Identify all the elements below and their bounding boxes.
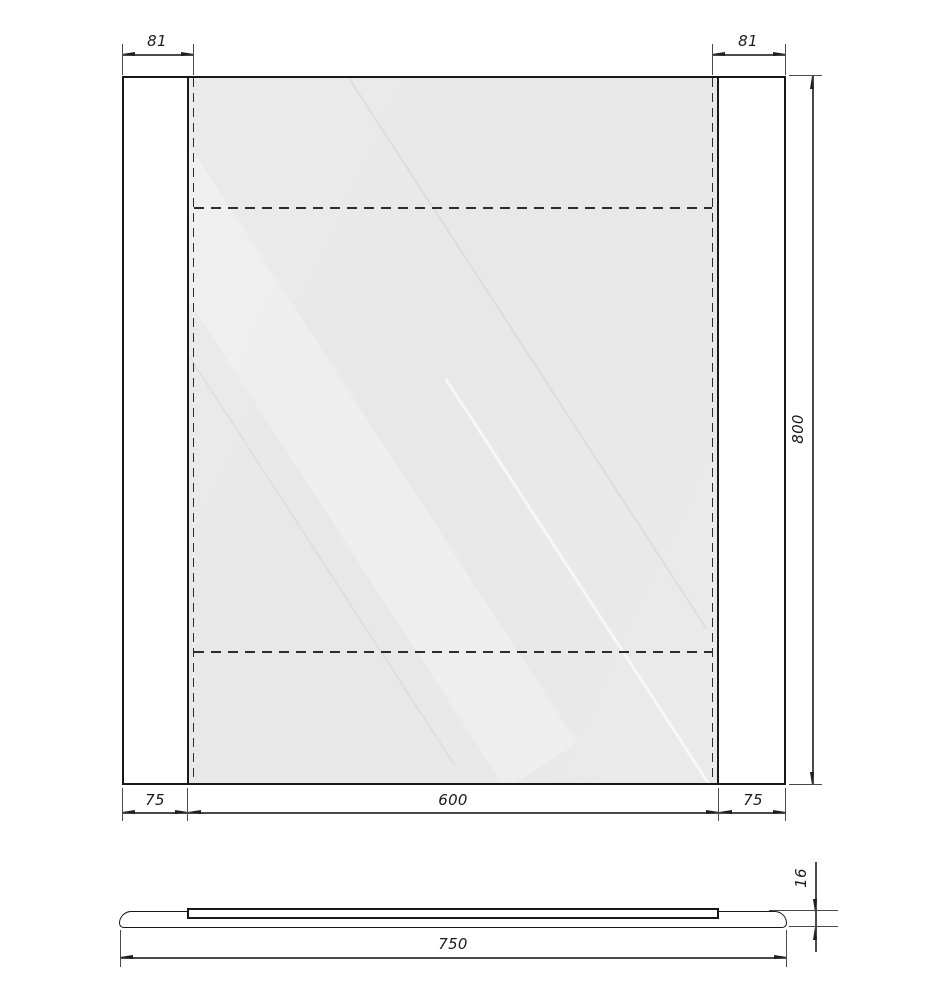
extension-line [122, 788, 123, 821]
hidden-edge-dashed-bottom [194, 651, 712, 653]
arrowhead-icon [712, 52, 725, 56]
mirror-glass-area [187, 78, 719, 783]
extension-line [712, 44, 713, 75]
arrowhead-icon [813, 899, 817, 912]
extension-line [193, 44, 194, 75]
extension-line [785, 44, 786, 75]
extension-line [718, 788, 719, 821]
arrowhead-icon [188, 810, 201, 814]
arrowhead-icon [181, 52, 194, 56]
arrowhead-icon [774, 955, 787, 959]
extension-line [789, 784, 822, 785]
arrowhead-icon [122, 52, 135, 56]
extension-line [120, 930, 121, 967]
extension-line [187, 788, 188, 821]
glass-reflection-streak [187, 78, 577, 783]
arrowhead-icon [773, 810, 786, 814]
dimension-value: 75 [734, 792, 772, 808]
arrowhead-icon [719, 810, 732, 814]
extension-line [785, 788, 786, 821]
dimension-value: 600 [428, 792, 478, 808]
arrowhead-icon [122, 810, 135, 814]
right-strip-edge-line [717, 78, 719, 783]
dimension-value: 81 [730, 33, 766, 49]
dimension-value: 800 [790, 407, 806, 451]
dimension-line [812, 76, 813, 785]
technical-drawing-canvas: 81 81 800 75 600 75 [0, 0, 931, 1000]
dimension-value: 16 [793, 863, 809, 893]
arrowhead-icon [813, 927, 817, 940]
arrowhead-icon [120, 955, 133, 959]
arrowhead-icon [706, 810, 719, 814]
dimension-value: 75 [137, 792, 173, 808]
dimension-line [120, 957, 787, 958]
arrowhead-icon [175, 810, 188, 814]
arrowhead-icon [810, 772, 814, 785]
dimension-value: 750 [428, 936, 478, 952]
hidden-edge-dashed-top [194, 207, 712, 209]
dimension-value: 81 [139, 33, 175, 49]
hidden-edge-dashed-right [712, 78, 714, 783]
dimension-line [122, 812, 786, 813]
extension-line [769, 910, 838, 911]
extension-line [786, 930, 787, 967]
hidden-edge-dashed-left [193, 78, 195, 783]
left-strip-edge-line [187, 78, 189, 783]
arrowhead-icon [810, 76, 814, 89]
side-profile-glass-step [187, 908, 719, 919]
arrowhead-icon [773, 52, 786, 56]
extension-line [122, 44, 123, 75]
extension-line [789, 75, 822, 76]
